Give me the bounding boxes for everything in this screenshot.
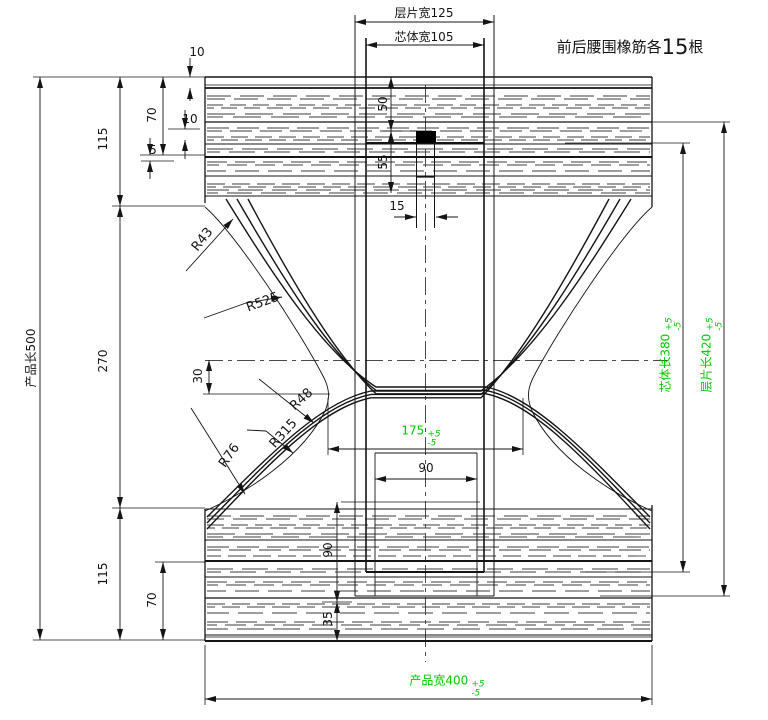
waist-elastic-note: 前后腰围橡筋各15根 [557,41,704,53]
centerlines [205,85,668,662]
dim-30-label: 30 [192,368,204,383]
dim-35-label: 35 [322,611,334,626]
dim-55-label: 55 [377,154,389,169]
position-marker [416,131,436,143]
dim-115-bottom-label: 115 [97,563,109,586]
dim-15-label: 15 [389,200,404,212]
dim-product-length-label: 产品长500 [25,329,37,388]
dim-core-length-label: 芯体长380+5-5 [660,317,683,392]
leader-r525 [204,303,246,318]
dim-5-label: 5 [149,144,157,156]
dim-115-top-label: 115 [97,128,109,151]
dim-product-width-label: 产品宽400+5-5 [409,675,484,698]
waist-elastic-strands [207,96,650,193]
dim-10a-label: 10 [189,46,204,58]
dim-layer-length-label: 层片长420+5-5 [701,317,724,392]
dim-core-width-label: 芯体宽105 [395,31,454,43]
dim-70-top-label: 70 [146,107,158,122]
dim-layer-width-label: 层片宽125 [395,7,454,19]
dim-50-label: 50 [377,96,389,111]
leader-r315 [247,430,266,431]
dim-270-label: 270 [97,350,109,373]
dim-crotch-width-label: 175+5-5 [401,425,440,448]
dim-70-bottom-label: 70 [146,592,158,607]
dim-90v-label: 90 [322,542,334,557]
leg-cuff-curves [207,199,650,529]
dim-10b-label: 10 [182,113,197,125]
dim-90h-label: 90 [418,462,433,474]
engineering-drawing: 层片宽125 芯体宽105 前后腰围橡筋各15根 产品长500 115 270 … [0,0,768,720]
